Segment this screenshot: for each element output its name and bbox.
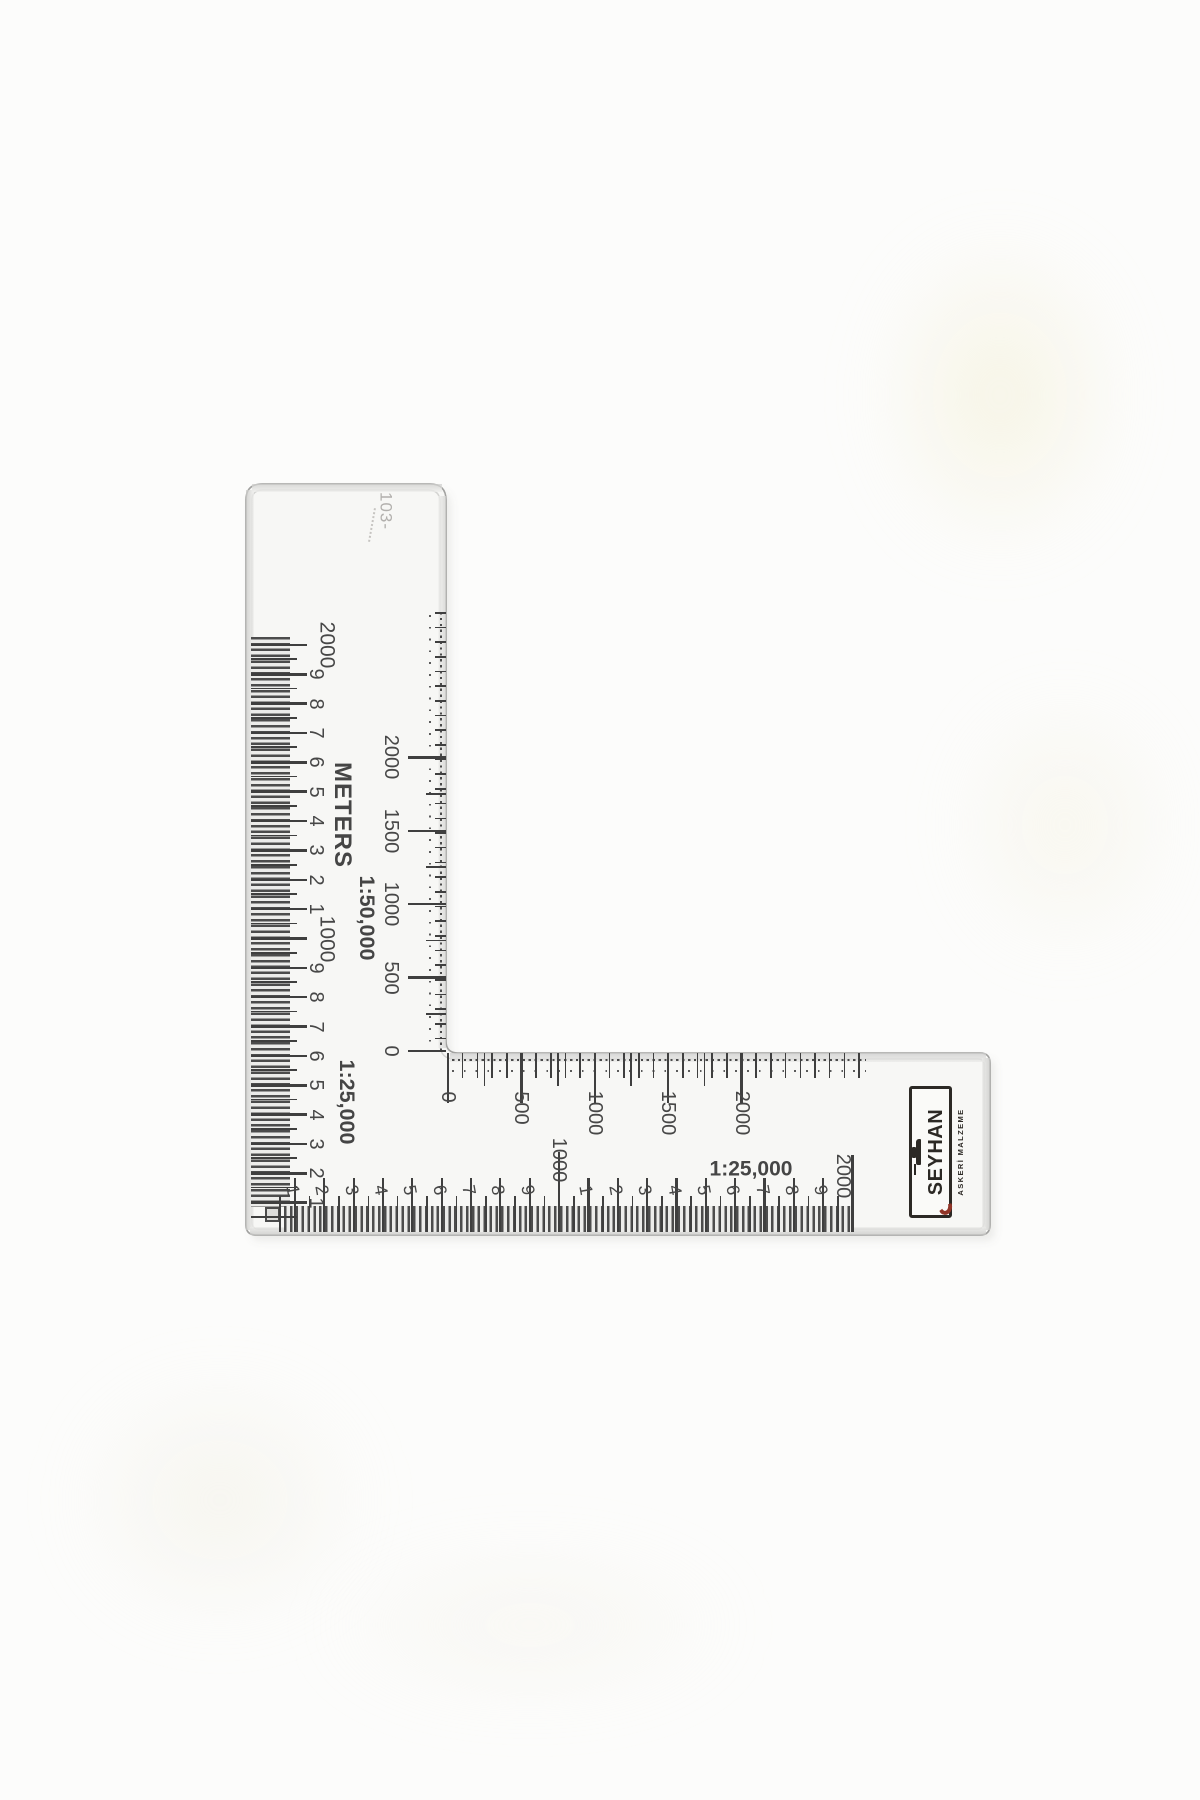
scale-label: 1000 [317,915,338,962]
bottom-scale-half-tick [632,1196,634,1232]
top-scale-minor-tick [755,1053,757,1078]
bottom-scale-half-tick [661,1196,663,1232]
left-scale-half-tick [251,776,297,778]
bottom-scale-half-tick [720,1196,722,1232]
left-scale-major-tick [251,732,307,735]
left-scale-half-tick [251,893,297,895]
inner-scale-medium-tick [426,1013,446,1015]
left-scale-major-tick [251,1055,307,1058]
inner-scale-minor-tick [435,612,446,614]
bottom-scale-half-tick [368,1196,370,1232]
left-scale-major-tick [251,644,307,647]
left-scale-half-tick [251,864,297,866]
left-scale-half-tick [251,1011,297,1013]
scale-label: 5 [306,1080,326,1091]
left-scale-half-tick [251,981,297,983]
scale-label: 1000 [585,1091,605,1136]
inner-scale-minor-tick [435,685,446,687]
scale-label: 1 [306,904,326,915]
top-scale-minor-tick [550,1053,552,1078]
top-scale-minor-tick [829,1053,831,1078]
inner-scale-minor-tick [435,964,446,966]
scale-label: 8 [306,698,326,709]
left-scale-major-tick [251,673,307,676]
left-scale-half-tick [251,746,297,748]
inner-scale-minor-tick [435,818,446,820]
top-scale-minor-tick [506,1053,508,1078]
scale-label: 2 [306,874,326,885]
inner-scale-minor-tick [435,671,446,673]
scale-label: 500 [381,961,401,994]
scale-label: 9 [306,962,326,973]
ruler-scales: 2000987654321100098765432120001500100050… [0,0,1200,1800]
inner-scale-minor-tick [435,627,446,629]
left-scale-major-tick [251,761,307,764]
scale-label: 0 [381,1045,401,1056]
top-scale-minor-tick [844,1053,846,1078]
inner-scale-major-tick [408,1050,446,1052]
left-scale-major-tick [251,1113,307,1116]
left-scale-half-tick [251,658,297,660]
bottom-scale-half-tick [690,1196,692,1232]
bottom-scale-half-tick [602,1196,604,1232]
scale-label: 5 [694,1184,713,1197]
inner-scale-minor-tick [435,744,446,746]
inner-scale-minor-tick [435,715,446,717]
left-scale-half-tick [251,923,297,925]
left-scale-half-tick [251,1099,297,1101]
scale-label: 1500 [381,809,401,854]
left-scale-major-tick [251,879,307,882]
scale-label: 7 [306,1021,326,1032]
bottom-scale-end-tick [851,1155,854,1232]
scale-label: 8 [306,992,326,1003]
bottom-scale-half-tick [485,1196,487,1232]
inner-scale-minor-tick [435,803,446,805]
inner-scale-minor-tick [435,729,446,731]
scale-label: 2 [313,1184,332,1197]
left-scale-major-tick [251,790,307,793]
inner-scale-minor-tick [435,700,446,702]
top-scale-minor-tick [682,1053,684,1078]
bottom-scale-half-tick [778,1196,780,1232]
scale-label: 4 [306,1109,326,1120]
inner-scale-minor-tick [435,979,446,981]
bottom-scale-half-tick [279,1196,281,1232]
top-scale-minor-tick [623,1053,625,1078]
inner-scale-minor-tick [435,891,446,893]
scale-label: 6 [430,1184,449,1197]
inner-scale-minor-tick [435,994,446,996]
scale-label: 7 [459,1184,478,1197]
left-scale-half-tick [251,688,297,690]
left-scale-major-tick [251,908,307,911]
inner-scale-minor-tick [435,788,446,790]
top-scale-minor-tick [462,1053,464,1078]
bottom-scale-half-tick [338,1196,340,1232]
scale-label: 9 [518,1184,537,1197]
scale-label: 6 [306,1050,326,1061]
left-scale-half-tick [251,1040,297,1042]
scale-label: 2000 [317,622,338,669]
top-scale-minor-tick [814,1053,816,1078]
left-scale-major-tick [251,1172,307,1175]
scale-label: 3 [306,845,326,856]
product-photo: 103- METERS 1:50,000 1:25,000 1:25,000 2… [0,0,1200,1800]
scale-label: 4 [665,1184,684,1197]
bottom-scale-half-tick [514,1196,516,1232]
scale-label: 0 [438,1091,458,1102]
scale-label: 6 [306,757,326,768]
inner-scale-minor-tick [435,1023,446,1025]
bottom-scale-half-tick [749,1196,751,1232]
scale-label: 2000 [381,735,401,780]
inner-scale-minor-tick [435,759,446,761]
scale-label: 9 [812,1184,831,1197]
left-scale-major-tick [251,937,307,940]
top-scale-minor-tick [697,1053,699,1078]
bottom-scale-half-tick [426,1196,428,1232]
inner-scale-medium-tick [426,866,446,868]
left-scale-half-tick [251,1069,297,1071]
top-scale-minor-tick [711,1053,713,1078]
scale-label: 8 [489,1184,508,1197]
top-scale-medium-tick [557,1053,559,1086]
scale-label: 1 [577,1184,596,1197]
scale-label: 4 [306,816,326,827]
scale-label: 4 [371,1184,390,1197]
bottom-scale-half-tick [808,1196,810,1232]
top-scale-medium-tick [630,1053,632,1086]
scale-label: 3 [342,1184,361,1197]
left-scale-major-tick [251,849,307,852]
scale-label: 1500 [658,1091,678,1136]
left-scale-major-tick [251,967,307,970]
top-scale-minor-tick [565,1053,567,1078]
bottom-scale-half-tick [837,1196,839,1232]
bottom-scale-half-tick [544,1196,546,1232]
left-scale-major-tick [251,1025,307,1028]
top-scale-minor-tick [535,1053,537,1078]
inner-scale-minor-tick [435,641,446,643]
inner-scale-minor-tick [435,935,446,937]
left-scale-major-tick [251,820,307,823]
inner-scale-minor-tick [435,876,446,878]
top-scale-medium-tick [704,1053,706,1086]
scale-label: 7 [753,1184,772,1197]
inner-scale-minor-tick [435,773,446,775]
bottom-scale-half-tick [456,1196,458,1232]
top-scale-minor-tick [770,1053,772,1078]
scale-label: 6 [723,1184,742,1197]
scale-label: 500 [511,1091,531,1124]
top-scale-minor-tick [800,1053,802,1078]
scale-label: 3 [306,1138,326,1149]
left-scale-major-tick [251,1084,307,1087]
top-scale-minor-tick [491,1053,493,1078]
scale-label: 8 [782,1184,801,1197]
top-scale-minor-tick [638,1053,640,1078]
scale-label: 7 [306,727,326,738]
inner-scale-minor-tick [435,847,446,849]
left-scale-half-tick [251,717,297,719]
bottom-scale-half-tick [309,1196,311,1232]
left-scale-major-tick [251,1143,307,1146]
left-scale-half-tick [251,1128,297,1130]
top-scale-minor-tick [579,1053,581,1078]
scale-label: 9 [306,669,326,680]
inner-scale-minor-tick [435,862,446,864]
scale-label: 2000 [732,1091,752,1136]
left-scale-half-tick [251,1157,297,1159]
top-scale-minor-tick [785,1053,787,1078]
left-scale-half-tick [251,835,297,837]
inner-scale-minor-tick [435,1008,446,1010]
scale-label: 5 [401,1184,420,1197]
inner-scale-minor-tick [435,920,446,922]
bottom-scale-half-tick [573,1196,575,1232]
top-scale-minor-tick [653,1053,655,1078]
inner-scale-medium-tick [426,793,446,795]
left-scale-half-tick [251,1216,297,1218]
left-scale-major-tick [251,996,307,999]
inner-scale-minor-tick [435,950,446,952]
scale-label: 1000 [549,1138,569,1183]
inner-scale-minor-tick [435,832,446,834]
top-scale-minor-tick [609,1053,611,1078]
top-scale-minor-tick [477,1053,479,1078]
left-scale-half-tick [251,805,297,807]
scale-label: 1000 [381,882,401,927]
top-scale-medium-tick [484,1053,486,1086]
inner-scale-medium-tick [426,940,446,942]
left-scale-major-tick [251,702,307,705]
scale-label: 3 [635,1184,654,1197]
inner-scale-minor-tick [435,906,446,908]
left-scale-half-tick [251,952,297,954]
scale-label: 1 [283,1184,302,1197]
inner-scale-minor-tick [435,656,446,658]
inner-scale-minor-tick [435,1038,446,1040]
scale-label: 5 [306,786,326,797]
top-scale-minor-tick [726,1053,728,1078]
bottom-scale-half-tick [397,1196,399,1232]
scale-label: 2 [606,1184,625,1197]
top-scale-minor-tick [858,1053,860,1078]
